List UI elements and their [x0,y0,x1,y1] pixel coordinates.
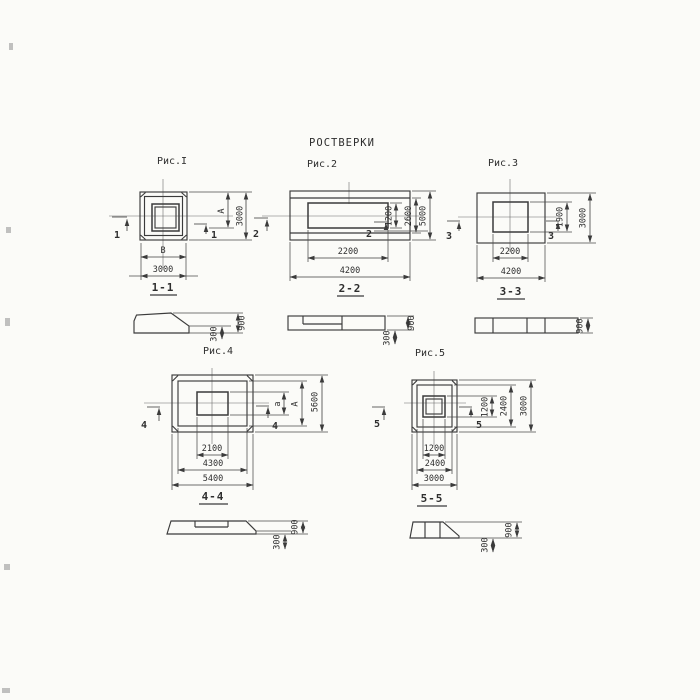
fig3-section-label: 3-3 [500,285,523,298]
fig3-mark-right: 3 [548,231,554,242]
fig1-sec-dim-total: 900 [238,315,248,330]
fig5-mark-left: 5 [374,419,380,430]
scan-artifacts [2,43,13,693]
fig2-mark-left: 2 [253,229,259,240]
fig1-dim-right-inner: А [217,208,227,213]
fig1-mark-left: 1 [114,230,120,241]
fig5-plan: 5 5 1200 2400 3000 1200 2400 3000 5-5 [372,371,536,506]
fig4-dim-right-inner: а [273,401,283,406]
fig4-dim-mid: 4300 [203,459,223,469]
fig3-mark-left: 3 [446,231,452,242]
fig5-mark-right: 5 [476,420,482,431]
fig4-dim-right-mid: А [291,401,301,406]
fig4-plan: 4 4 2100 4300 5400 а А 5600 4-4 [141,368,328,504]
fig1-section-view: 900 300 [134,313,248,342]
fig5-dim-bottom: 3000 [424,474,444,484]
fig3-dim-right-outer: 3000 [579,208,589,228]
drawing-canvas: РОСТВЕРКИ Рис.I Рис.2 Рис.3 Рис.4 Рис.5 … [0,0,700,700]
fig1-plan: 1 1 В 3000 А 3000 1-1 [109,179,252,295]
fig2-dim-inner: 2200 [338,247,358,257]
fig5-sec-dim-edge: 300 [481,537,491,552]
fig4-section-label: 4-4 [202,490,225,503]
fig2-dim-right-mid: 2600 [404,206,414,226]
fig3-sec-dim-total: 900 [576,318,586,333]
fig5-section-label: 5-5 [421,492,444,505]
fig2-mark-right: 2 [366,229,372,240]
fig2-sec-dim-edge: 300 [383,330,393,345]
fig4-dim-inner: 2100 [202,444,222,454]
fig1-sec-dim-edge: 300 [210,326,220,341]
fig3-section-view: 900 [475,318,593,334]
fig2-dim-right-outer: 5000 [419,206,429,226]
fig2-dim-right-inner: 1200 [385,206,395,226]
fig5-dim-right-mid: 2400 [500,396,510,416]
fig4-label: Рис.4 [203,346,233,357]
fig5-section-view: 900 300 [410,522,522,553]
fig5-label: Рис.5 [415,348,445,359]
fig2-dim-bottom: 4200 [340,266,360,276]
fig1-label: Рис.I [157,156,187,167]
fig4-dim-bottom: 5400 [203,474,223,484]
fig2-section-view: 900 300 [288,315,417,345]
fig3-plan: 3 3 2200 4200 1900 3000 3-3 [446,179,596,299]
fig3-label: Рис.3 [488,158,518,169]
fig5-dim-right-outer: 3000 [520,396,530,416]
fig2-section-label: 2-2 [339,282,362,295]
fig1-section-label: 1-1 [152,281,175,294]
fig1-mark-right: 1 [211,230,217,241]
fig2-sec-dim-total: 900 [407,315,417,330]
fig1-dim-right-outer: 3000 [236,206,246,226]
fig5-dim-inner: 1200 [424,444,444,454]
fig3-dim-inner: 2200 [500,247,520,257]
fig4-sec-dim-edge: 300 [273,534,283,549]
fig2-label: Рис.2 [307,159,337,170]
fig4-section-view: 900 300 [167,519,308,549]
fig2-plan: 2 2 2200 4200 1200 2600 5000 2-2 [253,182,436,296]
fig3-dim-right-inner: 1900 [556,207,566,227]
fig5-dim-right-inner: 1200 [481,397,491,417]
fig5-sec-dim-total: 900 [505,522,515,537]
fig4-dim-right-outer: 5600 [311,392,321,412]
fig1-dim-inner: В [160,246,165,256]
page-title: РОСТВЕРКИ [309,137,375,149]
fig1-dim-bottom: 3000 [153,265,173,275]
fig4-mark-right: 4 [272,421,278,432]
fig3-dim-bottom: 4200 [501,267,521,277]
fig5-dim-mid: 2400 [425,459,445,469]
fig4-mark-left: 4 [141,420,147,431]
fig4-sec-dim-total: 900 [291,519,301,534]
